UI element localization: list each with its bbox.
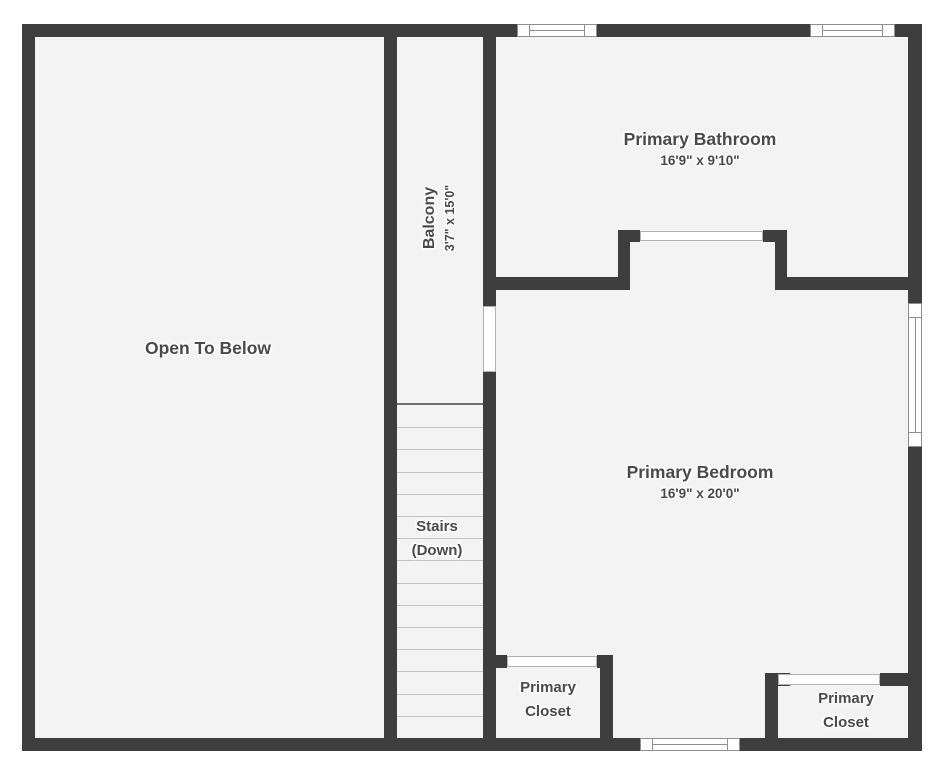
closet-left-door-opening <box>507 656 597 667</box>
open-to-below-label: Open To Below <box>145 336 271 360</box>
stair-tread <box>397 583 483 584</box>
wall-closet-left-right <box>600 655 613 738</box>
bathroom-door-opening <box>640 231 763 241</box>
stair-tread <box>397 694 483 695</box>
wall-bathroom-door-jamb-left <box>618 230 630 290</box>
wall-closet-right-top-cap-right <box>880 673 908 686</box>
stairs-treads <box>397 405 483 738</box>
stair-tread <box>397 627 483 628</box>
bedroom-title: Primary Bedroom <box>627 460 774 484</box>
wall-bathroom-bottom-right <box>775 277 922 290</box>
wall-divider-open-to-below <box>384 24 397 751</box>
stair-tread <box>397 427 483 428</box>
closet-left-line2: Closet <box>520 700 576 724</box>
balcony-label: Balcony 3'7" x 15'0" <box>419 185 459 251</box>
stairs-label-line1: Stairs <box>412 515 463 539</box>
closet-right-line1: Primary <box>818 687 874 711</box>
closet-right-line2: Closet <box>818 711 874 735</box>
floor-plan: Open To Below Balcony 3'7" x 15'0" Prima… <box>0 0 940 768</box>
closet-right-label: Primary Closet <box>818 687 874 735</box>
balcony-title: Balcony <box>419 185 441 251</box>
closet-left-label: Primary Closet <box>520 676 576 724</box>
open-to-below-title: Open To Below <box>145 336 271 360</box>
wall-divider-balcony-bedroom <box>483 24 496 751</box>
wall-outer-bottom <box>22 738 922 751</box>
bathroom-label: Primary Bathroom 16'9" x 9'10" <box>624 127 777 171</box>
bathroom-dimensions: 16'9" x 9'10" <box>624 151 777 171</box>
stair-tread <box>397 671 483 672</box>
stair-tread <box>397 494 483 495</box>
wall-bathroom-door-jamb-right <box>775 230 787 290</box>
stairs-label-line2: (Down) <box>412 539 463 563</box>
wall-outer-left <box>22 24 35 751</box>
stair-tread <box>397 716 483 717</box>
wall-closet-left-top-cap-left <box>496 655 507 668</box>
bathroom-window-left <box>517 24 597 37</box>
plan-interior: Open To Below Balcony 3'7" x 15'0" Prima… <box>22 24 922 751</box>
stair-tread <box>397 472 483 473</box>
stairs-label: Stairs (Down) <box>412 515 463 563</box>
balcony-door-opening <box>483 306 496 372</box>
closet-left-line1: Primary <box>520 676 576 700</box>
bedroom-window-bottom <box>640 738 740 751</box>
bathroom-window-right <box>810 24 895 37</box>
bedroom-label: Primary Bedroom 16'9" x 20'0" <box>627 460 774 504</box>
stair-tread <box>397 449 483 450</box>
stair-tread <box>397 649 483 650</box>
wall-bathroom-bottom-left <box>483 277 630 290</box>
closet-right-door-opening <box>778 674 880 685</box>
stair-tread <box>397 605 483 606</box>
bedroom-window-right <box>908 303 922 447</box>
balcony-dimensions: 3'7" x 15'0" <box>441 185 459 251</box>
bathroom-title: Primary Bathroom <box>624 127 777 151</box>
wall-outer-top <box>22 24 922 37</box>
bedroom-dimensions: 16'9" x 20'0" <box>627 484 774 504</box>
